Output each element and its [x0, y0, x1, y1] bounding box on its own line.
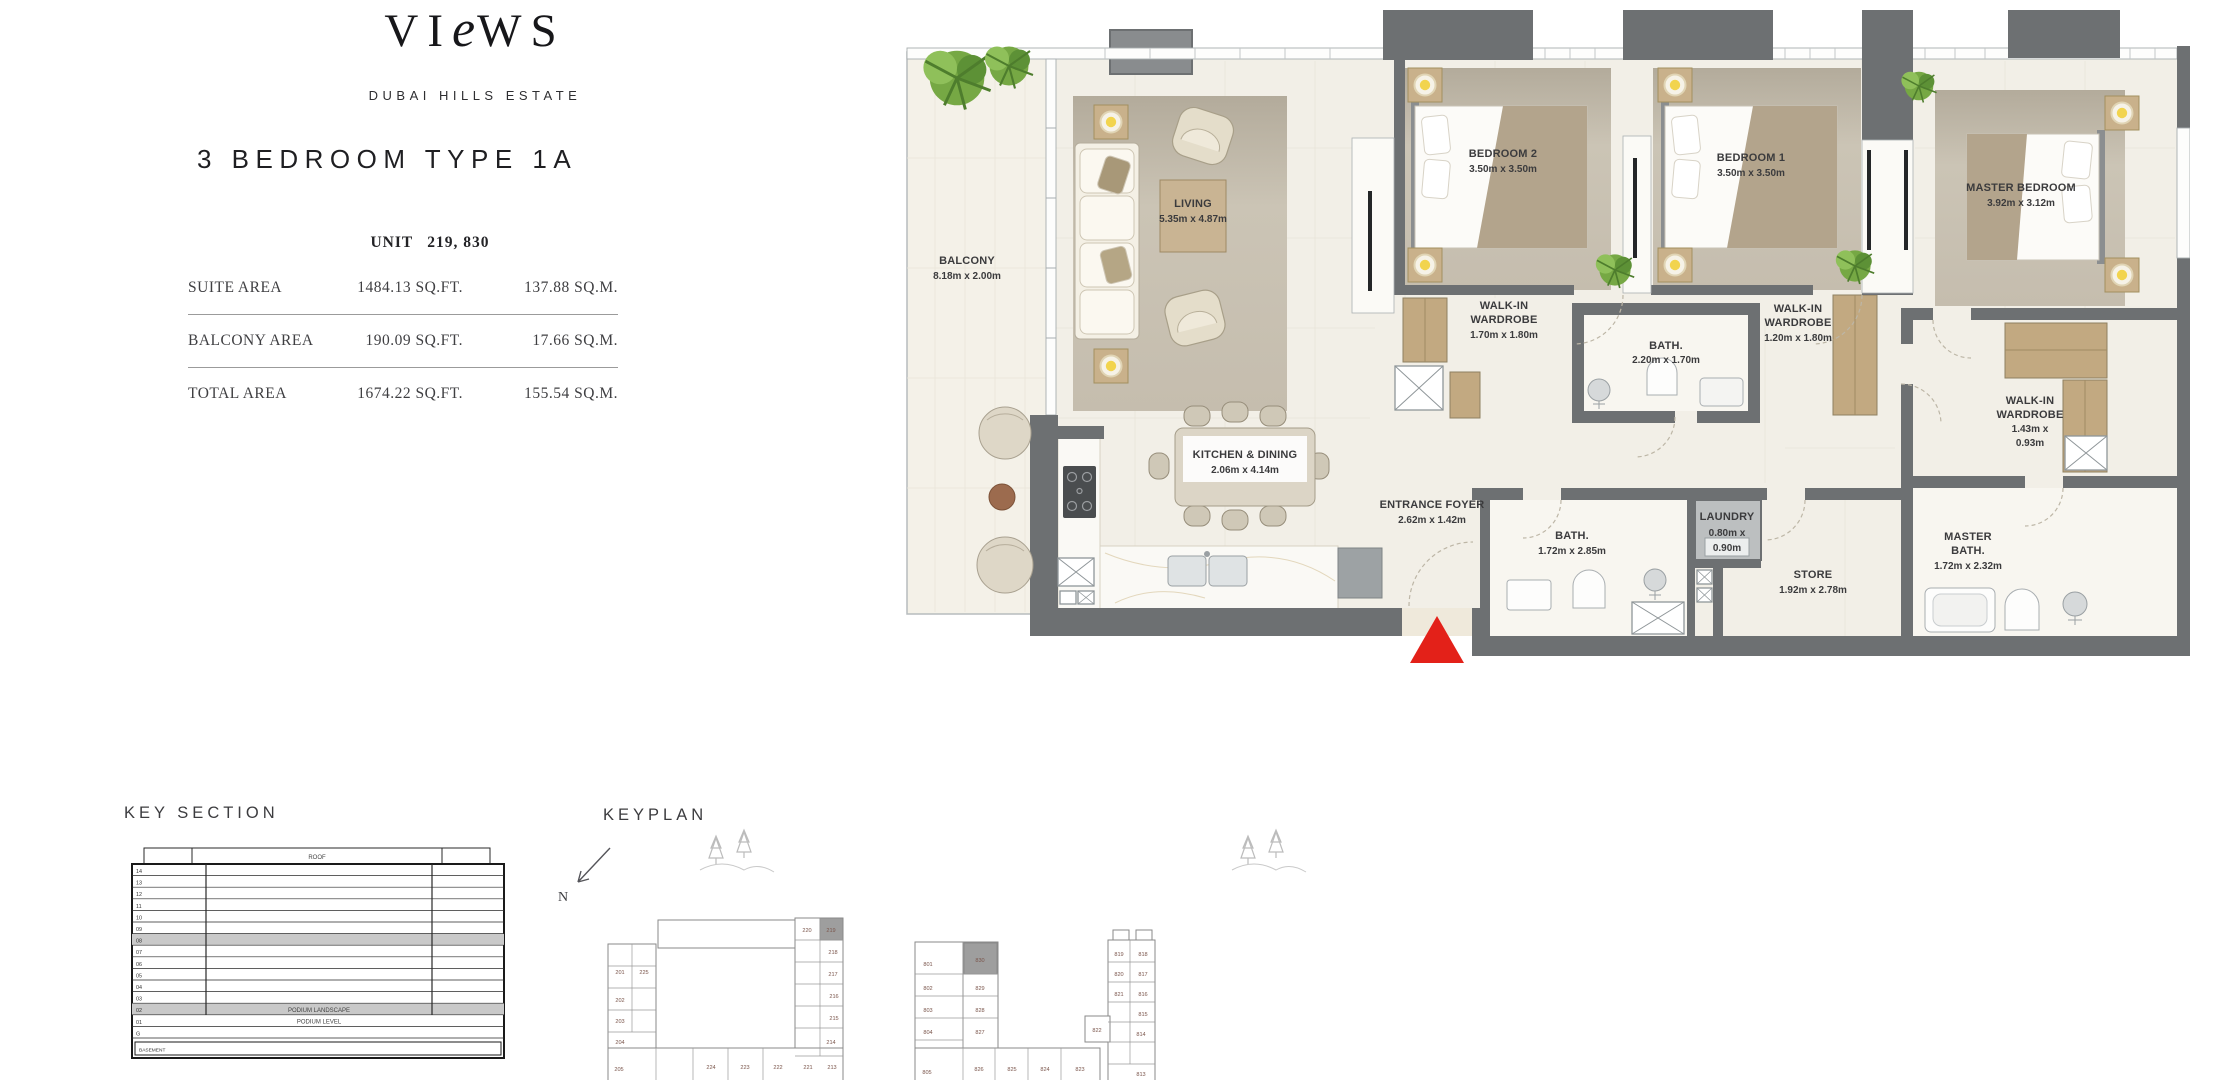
unit-203: 203: [615, 1019, 624, 1025]
unit-825: 825: [1007, 1067, 1016, 1073]
floor-14: 14: [136, 869, 142, 875]
area-row-balcony: BALCONY AREA 190.09 SQ.FT. 17.66 SQ.M.: [188, 314, 618, 367]
logo-text: VI: [384, 5, 452, 57]
section-outline: [132, 864, 504, 1058]
living-lamp-table-1: [1094, 105, 1128, 139]
balcony-area-sqft: 190.09 SQ.FT.: [338, 332, 463, 350]
suite-area-sqft: 1484.13 SQ.FT.: [338, 279, 463, 297]
room-label-master-bedroom: MASTER BEDROOM: [1966, 182, 2076, 194]
keyplan-title: KEYPLAN: [603, 806, 707, 824]
unit-224: 224: [706, 1065, 715, 1071]
unit-824: 824: [1040, 1067, 1049, 1073]
unit-813: 813: [1136, 1072, 1145, 1078]
unit-805: 805: [922, 1070, 931, 1076]
living-lamp-table-2: [1094, 349, 1128, 383]
keyplan-building-2: 801 830 802 829 803 828 804 827 805 826 …: [915, 930, 1155, 1080]
bath2-dims: 1.72m x 2.85m: [1538, 546, 1606, 557]
floor-basement: BASEMENT: [139, 1048, 165, 1054]
ww-master-4: 0.93m: [2016, 438, 2044, 449]
room-dims-living: 5.35m x 4.87m: [1159, 214, 1227, 225]
room-label-living: LIVING: [1174, 198, 1212, 210]
brochure-page: VIeWS DUBAI HILLS ESTATE 3 BEDROOM TYPE …: [0, 0, 2220, 1080]
unit-202: 202: [615, 998, 624, 1004]
fridge-cabinet: [1338, 548, 1382, 598]
area-row-total: TOTAL AREA 1674.22 SQ.FT. 155.54 SQ.M.: [188, 367, 618, 420]
room-dims-bedroom2: 3.50m x 3.50m: [1469, 164, 1537, 175]
unit-830: 830: [975, 958, 984, 964]
podium-level-label: PODIUM LEVEL: [297, 1019, 342, 1025]
unit-225: 225: [639, 970, 648, 976]
top-window-band: [907, 48, 2177, 59]
bedroom2-furniture: [1403, 68, 1611, 290]
area-table: SUITE AREA 1484.13 SQ.FT. 137.88 SQ.M. B…: [188, 262, 618, 420]
unit-223: 223: [740, 1065, 749, 1071]
keyplan-building-1: 201 225 202 203 204 205 224 223 222 221 …: [608, 918, 843, 1080]
floor-12: 12: [136, 892, 142, 898]
floor-10: 10: [136, 915, 142, 921]
floor-06: 06: [136, 962, 142, 968]
unit-821: 821: [1114, 992, 1123, 998]
unit-818: 818: [1138, 952, 1147, 958]
unit-222: 222: [773, 1065, 782, 1071]
unit-info: UNIT219, 830: [290, 234, 570, 252]
unit-802: 802: [923, 986, 932, 992]
total-area-label: TOTAL AREA: [188, 385, 338, 403]
logo-text-2: WS: [477, 5, 566, 57]
brand-logo: VIeWS: [330, 0, 620, 59]
ww2-label-1: WALK-IN: [1480, 300, 1528, 312]
master-bath-3: 1.72m x 2.32m: [1934, 561, 2002, 572]
floor-11: 11: [136, 904, 142, 910]
unit-829: 829: [975, 986, 984, 992]
unit-814: 814: [1136, 1032, 1145, 1038]
unit-217: 217: [828, 972, 837, 978]
room-label-bedroom2: BEDROOM 2: [1469, 148, 1537, 160]
suite-area-sqm: 137.88 SQ.M.: [463, 279, 618, 297]
ww-master-1: WALK-IN: [2006, 395, 2054, 407]
floor-04: 04: [136, 985, 142, 991]
unit-816: 816: [1138, 992, 1147, 998]
unit-823: 823: [1075, 1067, 1084, 1073]
floor-05: 05: [136, 973, 142, 979]
bedroom1-furniture: [1653, 68, 1861, 290]
kitchen-label: KITCHEN & DINING: [1193, 449, 1298, 461]
floor-g: G: [136, 1031, 140, 1037]
laundry-label-3: 0.90m: [1713, 543, 1741, 554]
suite-area-label: SUITE AREA: [188, 279, 338, 297]
store-label: STORE: [1794, 569, 1833, 581]
unit-803: 803: [923, 1008, 932, 1014]
estate-name: DUBAI HILLS ESTATE: [320, 88, 630, 103]
unit-201: 201: [615, 970, 624, 976]
ww1-label-3: 1.20m x 1.80m: [1764, 333, 1832, 344]
unit-221: 221: [803, 1065, 812, 1071]
north-arrow: N: [558, 848, 610, 905]
balcony-slider: [1046, 59, 1056, 415]
unit-204: 204: [615, 1040, 624, 1046]
area-row-suite: SUITE AREA 1484.13 SQ.FT. 137.88 SQ.M.: [188, 262, 618, 314]
ww-master-3: 1.43m x: [2012, 424, 2049, 435]
unit-819: 819: [1114, 952, 1123, 958]
laundry-label-2: 0.80m x: [1709, 528, 1746, 539]
floor-09: 09: [136, 927, 142, 933]
ww2-label-2: WARDROBE: [1471, 314, 1538, 326]
floor-plan: BALCONY 8.18m x 2.00m LIVING 5.35m x 4.8…: [905, 8, 2190, 664]
unit-216: 216: [829, 994, 838, 1000]
keyplan-trees: [700, 830, 1306, 872]
unit-205: 205: [614, 1067, 623, 1073]
unit-220: 220: [802, 928, 811, 934]
unit-219: 219: [826, 928, 835, 934]
footprint-mask: [1023, 636, 1472, 664]
unit-label: UNIT: [370, 234, 413, 251]
unit-820: 820: [1114, 972, 1123, 978]
ww-master-2: WARDROBE: [1997, 409, 2064, 421]
north-label: N: [558, 890, 568, 905]
unit-822: 822: [1092, 1028, 1101, 1034]
unit-801: 801: [923, 962, 932, 968]
ww1-label-1: WALK-IN: [1774, 303, 1822, 315]
total-area-sqft: 1674.22 SQ.FT.: [338, 385, 463, 403]
unit-numbers: 219, 830: [427, 234, 489, 251]
foyer-dims: 2.62m x 1.42m: [1398, 515, 1466, 526]
unit-218: 218: [828, 950, 837, 956]
floor-08: 08: [136, 939, 142, 945]
balcony-area-label: BALCONY AREA: [188, 332, 338, 350]
foyer-label: ENTRANCE FOYER: [1380, 499, 1485, 511]
unit-215: 215: [829, 1016, 838, 1022]
podium-landscape-label: PODIUM LANDSCAPE: [288, 1008, 350, 1014]
master-bath-2: BATH.: [1951, 545, 1985, 557]
floor-01: 01: [136, 1020, 142, 1026]
room-dims-bedroom1: 3.50m x 3.50m: [1717, 168, 1785, 179]
laundry-label-1: LAUNDRY: [1700, 511, 1755, 523]
room-label-balcony: BALCONY: [939, 255, 995, 267]
floor-07: 07: [136, 950, 142, 956]
roof-label: ROOF: [308, 855, 326, 861]
logo-swash-e: e: [452, 1, 477, 58]
unit-826: 826: [974, 1067, 983, 1073]
unit-804: 804: [923, 1030, 932, 1036]
key-section-title: KEY SECTION: [124, 804, 279, 822]
unit-214: 214: [826, 1040, 835, 1046]
floor-13: 13: [136, 881, 142, 887]
page-title: 3 BEDROOM TYPE 1A: [197, 144, 717, 175]
highlight-floor-08: [132, 934, 504, 946]
bath2-label: BATH.: [1555, 530, 1589, 542]
unit-827: 827: [975, 1030, 984, 1036]
kitchen-dims: 2.06m x 4.14m: [1211, 465, 1279, 476]
room-dims-master-bedroom: 3.92m x 3.12m: [1987, 198, 2055, 209]
store-dims: 1.92m x 2.78m: [1779, 585, 1847, 596]
unit-815: 815: [1138, 1012, 1147, 1018]
unit-817: 817: [1138, 972, 1147, 978]
floor-02: 02: [136, 1008, 142, 1014]
room-dims-balcony: 8.18m x 2.00m: [933, 271, 1001, 282]
unit-828: 828: [975, 1008, 984, 1014]
ww1-label-2: WARDROBE: [1765, 317, 1832, 329]
balcony-area-sqm: 17.66 SQ.M.: [463, 332, 618, 350]
room-label-bedroom1: BEDROOM 1: [1717, 152, 1785, 164]
total-area-sqm: 155.54 SQ.M.: [463, 385, 618, 403]
floor-03: 03: [136, 997, 142, 1003]
bath-shared-dims: 2.20m x 1.70m: [1632, 355, 1700, 366]
bath-shared-label: BATH.: [1649, 340, 1683, 352]
basement-row: [135, 1042, 501, 1055]
ww2-label-3: 1.70m x 1.80m: [1470, 330, 1538, 341]
key-section: KEY SECTION ROOF 14 13 12 11 10 09 08 07…: [122, 798, 522, 1080]
unit-213: 213: [827, 1065, 836, 1071]
master-bath-1: MASTER: [1944, 531, 1992, 543]
stove: [1063, 466, 1096, 518]
keyplan: KEYPLAN N 201 225: [548, 798, 1328, 1080]
